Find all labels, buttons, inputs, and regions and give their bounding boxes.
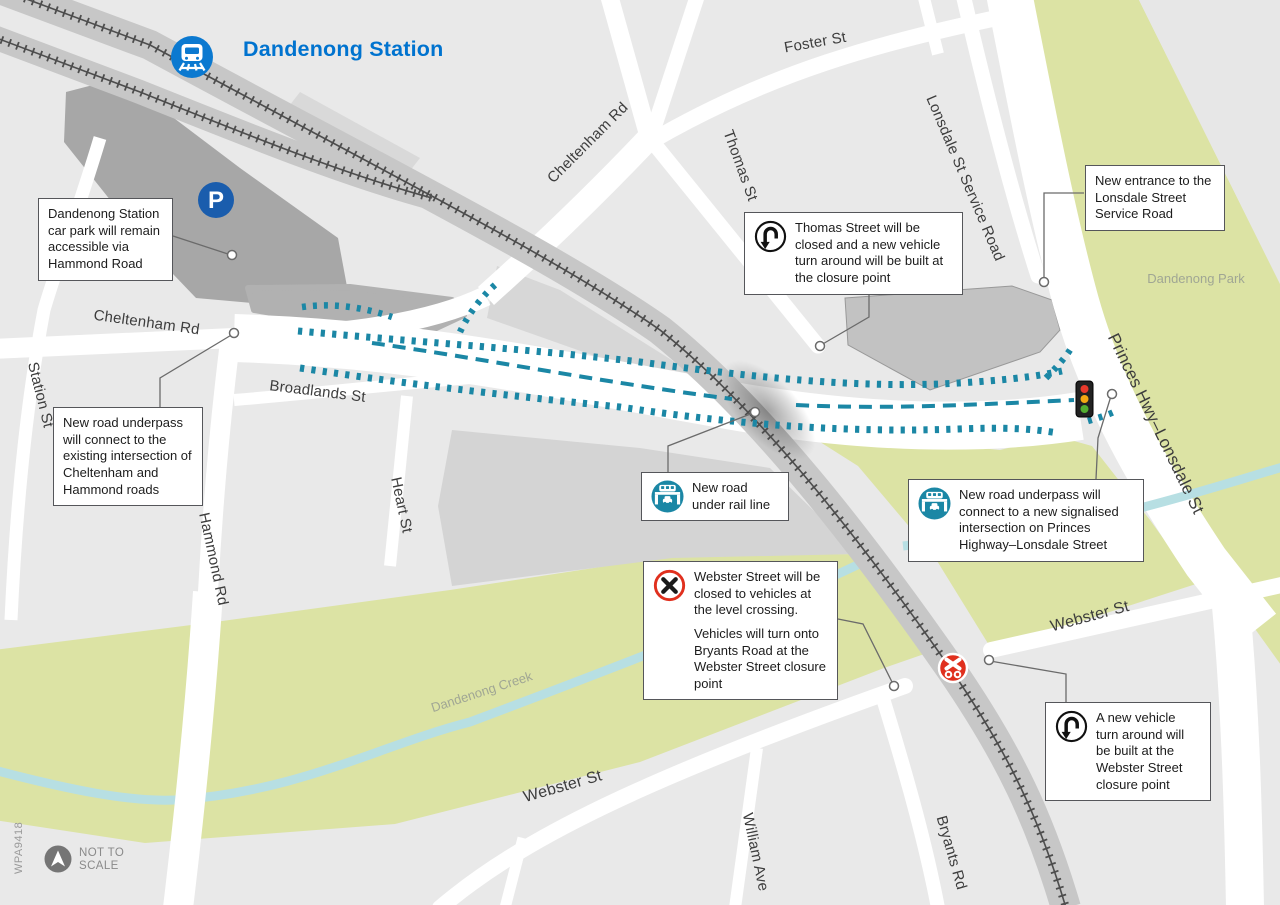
road-closed-icon — [653, 569, 686, 602]
callout-cheltenham-underpass-text: New road underpass will connect to the e… — [63, 415, 193, 498]
north-arrow-icon — [45, 846, 72, 873]
parking-icon-glyph: P — [208, 187, 224, 214]
map-reference-code: WPA9418 — [13, 822, 25, 874]
callout-car-park: Dandenong Station car park will remain a… — [38, 198, 173, 281]
train-station-icon — [171, 36, 213, 78]
area-label-park: Dandenong Park — [1147, 271, 1245, 286]
not-to-scale-line1: NOT TO — [79, 847, 124, 859]
underpass-icon — [918, 487, 951, 520]
callout-webster-turnaround-text: A new vehicle turn around will be built … — [1096, 710, 1201, 793]
callout-car-park-text: Dandenong Station car park will remain a… — [48, 206, 163, 273]
callout-webster-closure: Webster Street will be closed to vehicle… — [643, 561, 838, 700]
callout-princes-underpass: New road underpass will connect to a new… — [908, 479, 1144, 562]
station-title: Dandenong Station — [243, 37, 443, 61]
project-map-page: { "station": { "label": "Dandenong Stati… — [0, 0, 1280, 905]
callout-rail-underpass: New road under rail line — [641, 472, 789, 521]
road-princes-hwy-south — [1230, 595, 1245, 905]
parking-icon: P — [198, 182, 234, 218]
callout-webster-turnaround: A new vehicle turn around will be built … — [1045, 702, 1211, 801]
callout-thomas-closure: Thomas Street will be closed and a new v… — [744, 212, 963, 295]
underpass-icon — [651, 480, 684, 513]
callout-thomas-closure-text: Thomas Street will be closed and a new v… — [795, 220, 953, 287]
callout-webster-closure-text2: Vehicles will turn onto Bryants Road at … — [694, 626, 828, 693]
callout-cheltenham-underpass: New road underpass will connect to the e… — [53, 407, 203, 506]
u-turn-icon — [754, 220, 787, 253]
callout-lonsdale-entrance-text: New entrance to the Lonsdale Street Serv… — [1095, 173, 1215, 223]
callout-princes-underpass-text: New road underpass will connect to a new… — [959, 487, 1134, 554]
traffic-light-icon — [1076, 381, 1093, 417]
level-crossing-removal-icon — [939, 654, 967, 682]
u-turn-icon — [1055, 710, 1088, 743]
not-to-scale-line2: SCALE — [79, 860, 119, 872]
callout-rail-underpass-text: New road under rail line — [692, 480, 779, 513]
callout-lonsdale-entrance: New entrance to the Lonsdale Street Serv… — [1085, 165, 1225, 231]
callout-webster-closure-text1: Webster Street will be closed to vehicle… — [694, 569, 828, 619]
